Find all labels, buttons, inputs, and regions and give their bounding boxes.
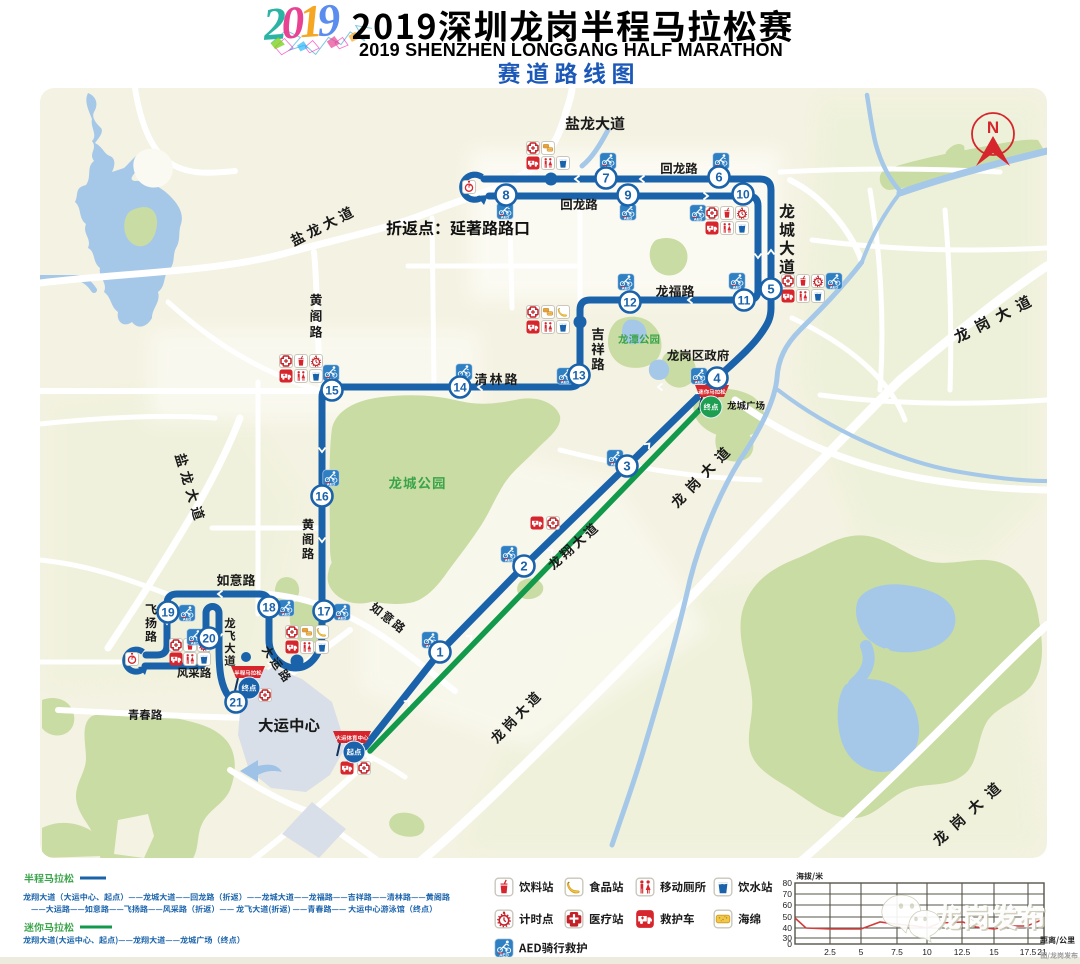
svg-text:50: 50 [783,912,793,922]
svg-text:5: 5 [767,282,774,297]
svg-text:7.5: 7.5 [891,947,903,957]
svg-text:2019 SHENZHEN LONGGANG HALF M: 2019 SHENZHEN LONGGANG HALF MARATHON [359,40,783,60]
svg-text:15: 15 [325,383,339,397]
svg-text:4: 4 [713,371,721,386]
svg-text:15: 15 [989,947,999,957]
svg-text:N: N [987,118,999,137]
svg-text:3: 3 [623,459,630,474]
svg-text:0: 0 [787,939,792,949]
svg-text:13: 13 [572,368,586,382]
svg-text:10: 10 [736,187,750,201]
svg-text:40: 40 [783,923,793,933]
svg-text:12.5: 12.5 [954,947,971,957]
svg-text:1: 1 [436,645,443,660]
svg-text:20: 20 [202,631,216,645]
svg-text:8: 8 [502,188,509,203]
svg-text:17.5: 17.5 [1020,947,1037,957]
svg-text:10: 10 [922,947,932,957]
svg-text:5: 5 [859,947,864,957]
svg-text:18: 18 [262,600,276,614]
svg-text:6: 6 [715,170,722,185]
svg-text:14: 14 [453,380,467,394]
svg-text:19: 19 [161,605,175,619]
svg-text:60: 60 [783,900,793,910]
svg-text:16: 16 [315,489,329,503]
svg-text:12: 12 [623,295,637,309]
svg-text:11: 11 [738,293,751,307]
svg-text:7: 7 [602,171,609,186]
svg-text:2.5: 2.5 [824,947,836,957]
svg-text:70: 70 [783,889,793,899]
svg-text:80: 80 [783,878,793,888]
svg-text:17: 17 [317,604,331,618]
svg-text:2: 2 [520,559,527,574]
svg-text:9: 9 [624,188,631,203]
svg-text:21: 21 [229,695,243,709]
